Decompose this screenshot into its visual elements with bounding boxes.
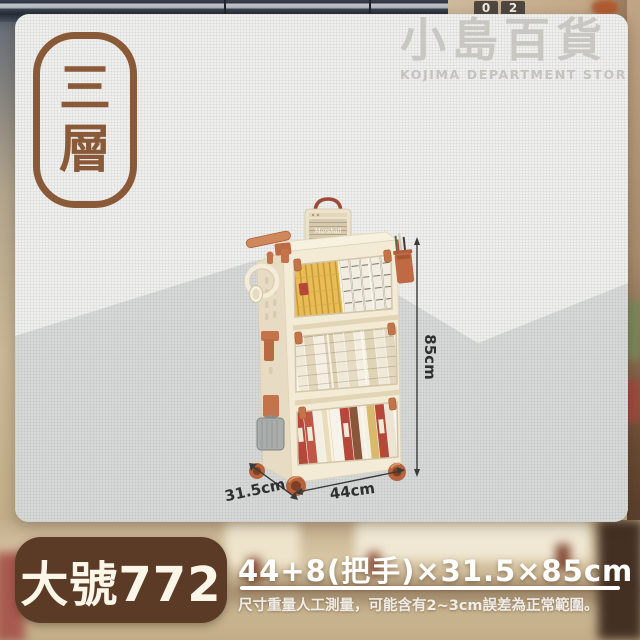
tier-badge-char: 三: [59, 61, 111, 118]
disclaimer-text: 尺寸重量人工測量，可能含有2~3cm誤差為正常範圍。: [238, 594, 638, 615]
store-watermark: 小島百貨 KOJIMA DEPARTMENT STORE: [400, 16, 625, 82]
width-dimension-label: 44cm: [329, 479, 376, 503]
plant-blur: [626, 300, 640, 360]
tier-badge-char: 層: [59, 122, 111, 179]
flower-blur: [626, 380, 640, 422]
store-name: 小島百貨: [400, 16, 625, 64]
linen-card: 三 層 小島百貨 KOJIMA DEPARTMENT STORE Marshal…: [15, 14, 628, 522]
dimensions-text: 44+8(把手)×31.5×85cm: [238, 548, 630, 590]
dimensions-underline: [240, 586, 620, 590]
storage-cart: [245, 230, 415, 496]
speaker-brand-label: Marshall: [314, 228, 342, 235]
product-image: Marshall: [215, 195, 445, 510]
depth-dimension-label: 31.5cm: [223, 475, 287, 505]
size-badge: 大號772: [15, 537, 227, 623]
store-name-en: KOJIMA DEPARTMENT STORE: [400, 67, 625, 82]
tier-count-badge: 三 層: [33, 32, 137, 208]
size-badge-label: 大號772: [20, 545, 221, 615]
height-dimension-label: 85cm: [421, 334, 439, 379]
shelf-pot-blur: [592, 0, 618, 15]
